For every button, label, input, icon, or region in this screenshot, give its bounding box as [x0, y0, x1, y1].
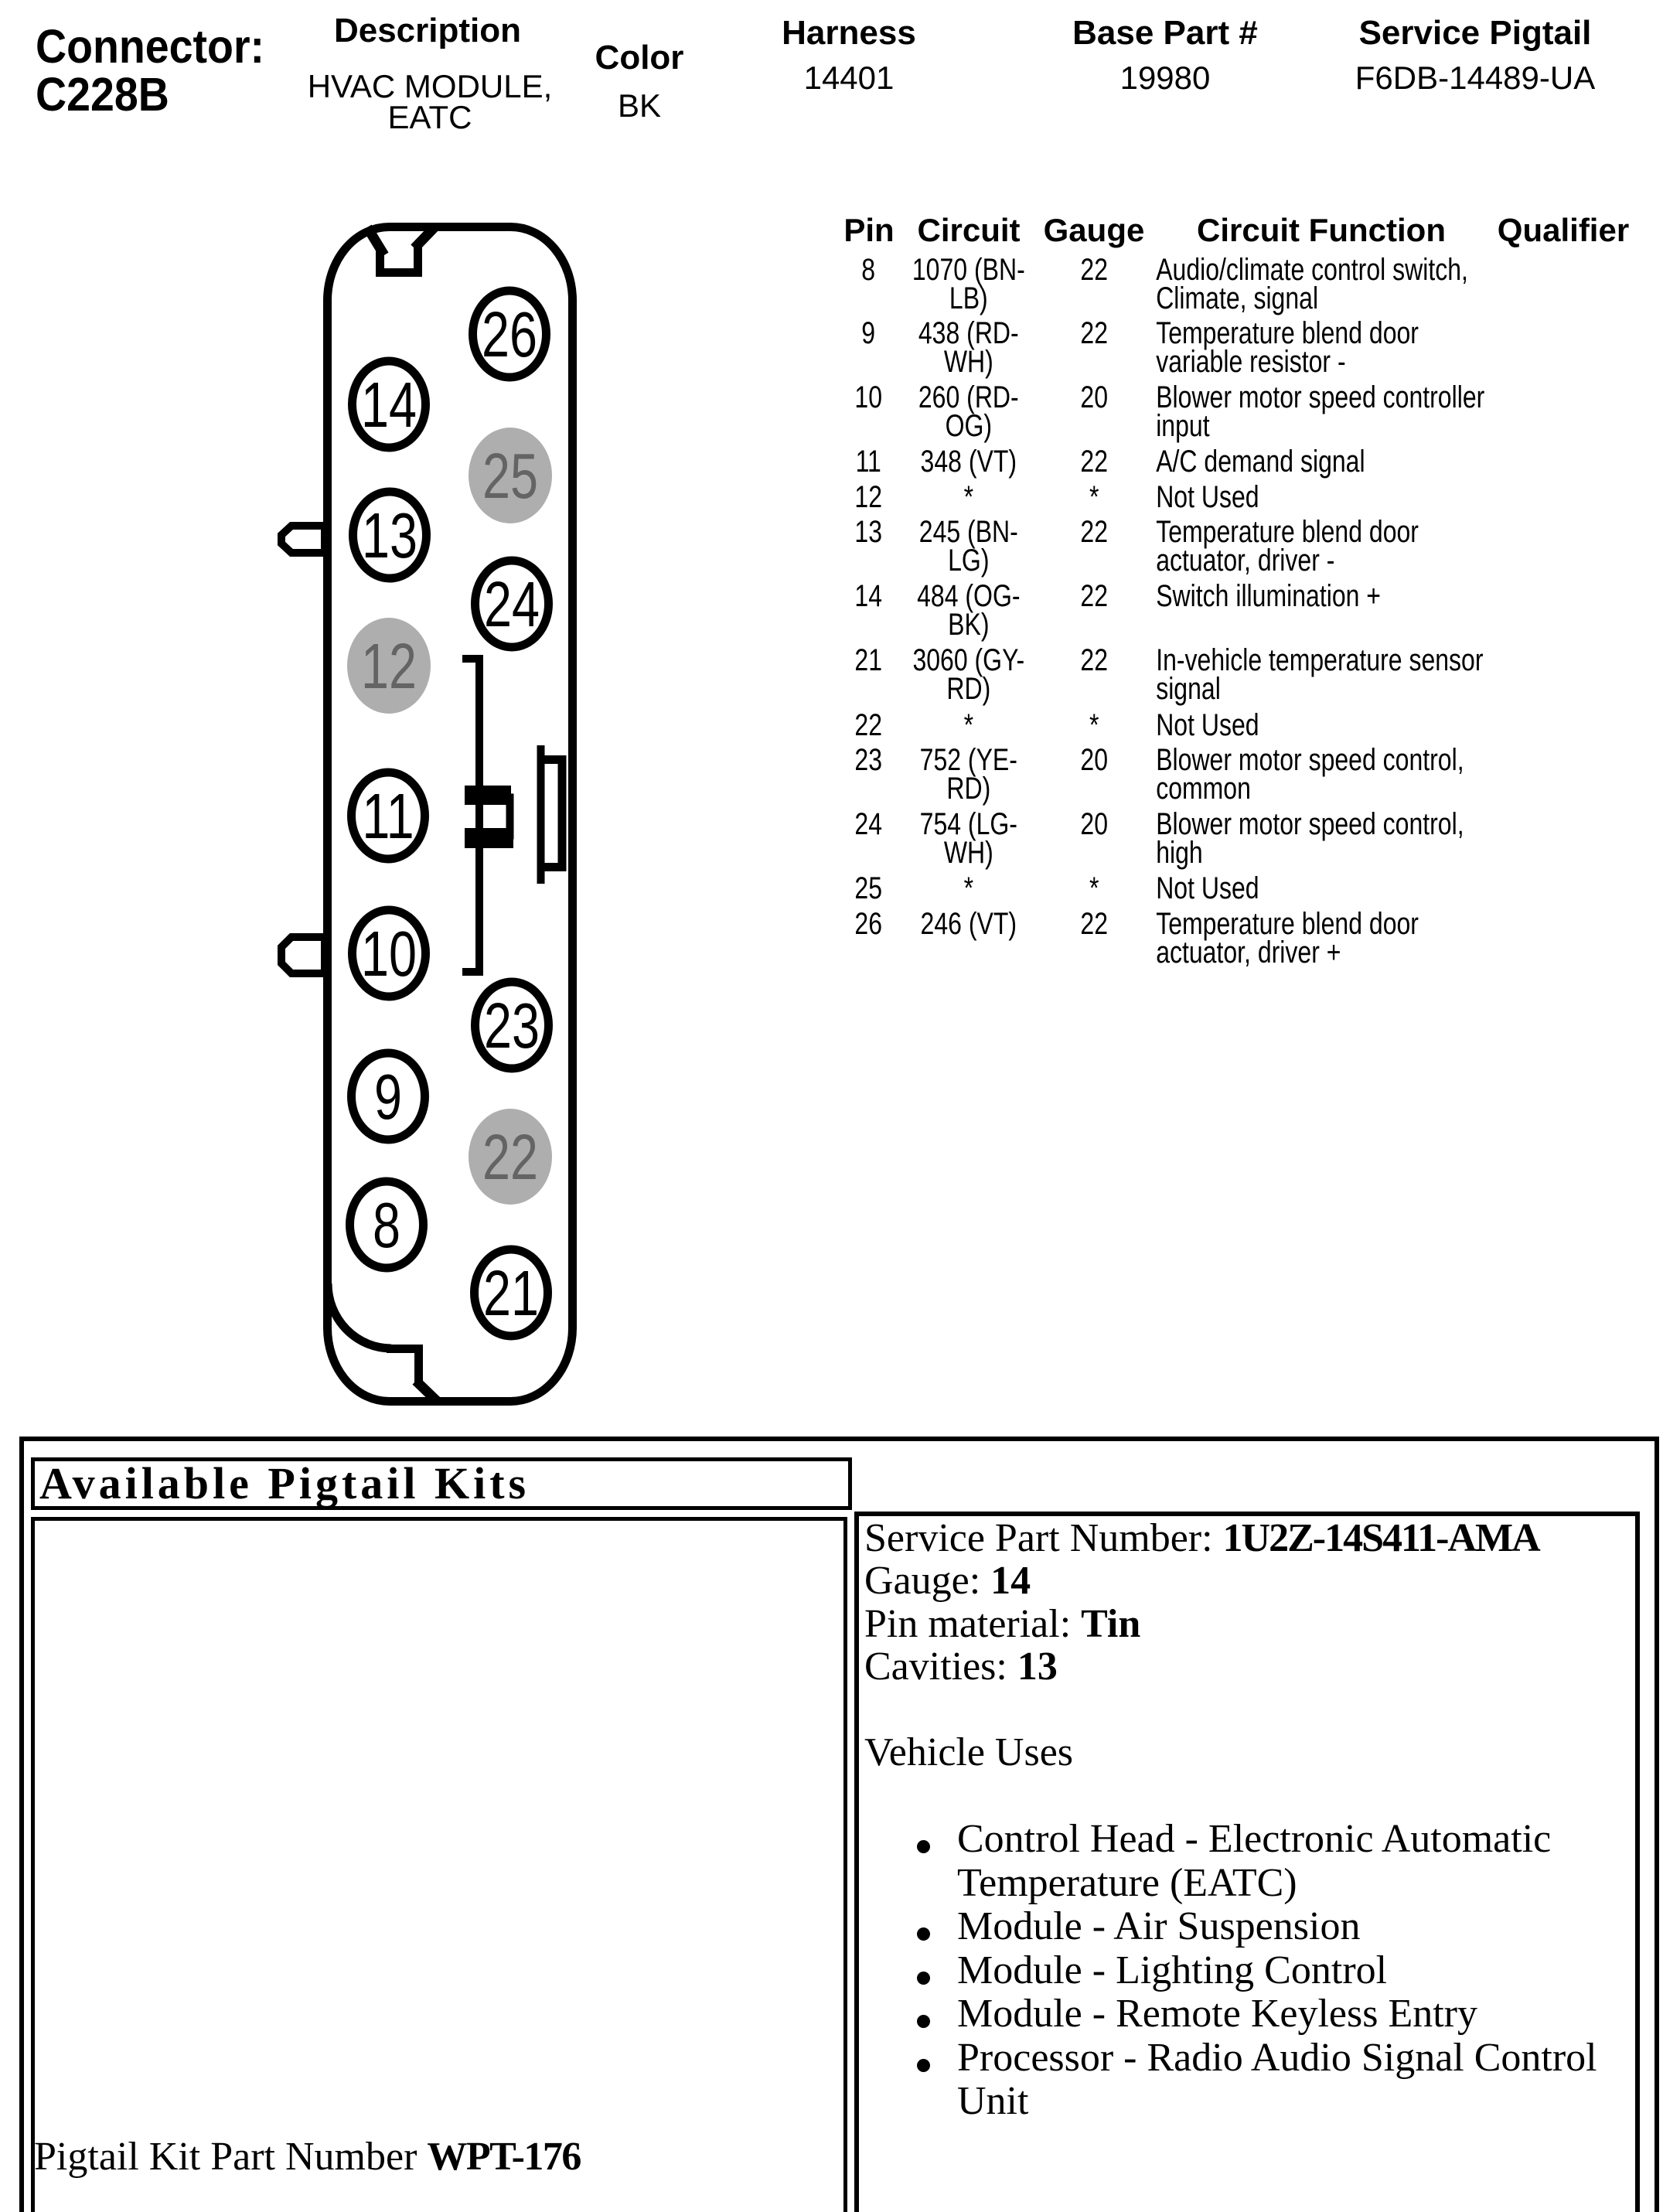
svg-text:11: 11	[362, 780, 414, 852]
svg-text:21: 21	[483, 1257, 539, 1329]
svg-text:25: 25	[482, 440, 538, 512]
svg-text:22: 22	[482, 1121, 538, 1193]
svg-text:13: 13	[362, 499, 417, 571]
svg-text:12: 12	[361, 630, 417, 702]
svg-text:23: 23	[484, 990, 540, 1062]
svg-text:24: 24	[484, 568, 540, 640]
svg-text:8: 8	[373, 1189, 400, 1261]
svg-text:14: 14	[361, 369, 417, 441]
svg-text:9: 9	[374, 1061, 402, 1133]
svg-text:10: 10	[361, 918, 417, 990]
svg-text:26: 26	[482, 298, 537, 370]
